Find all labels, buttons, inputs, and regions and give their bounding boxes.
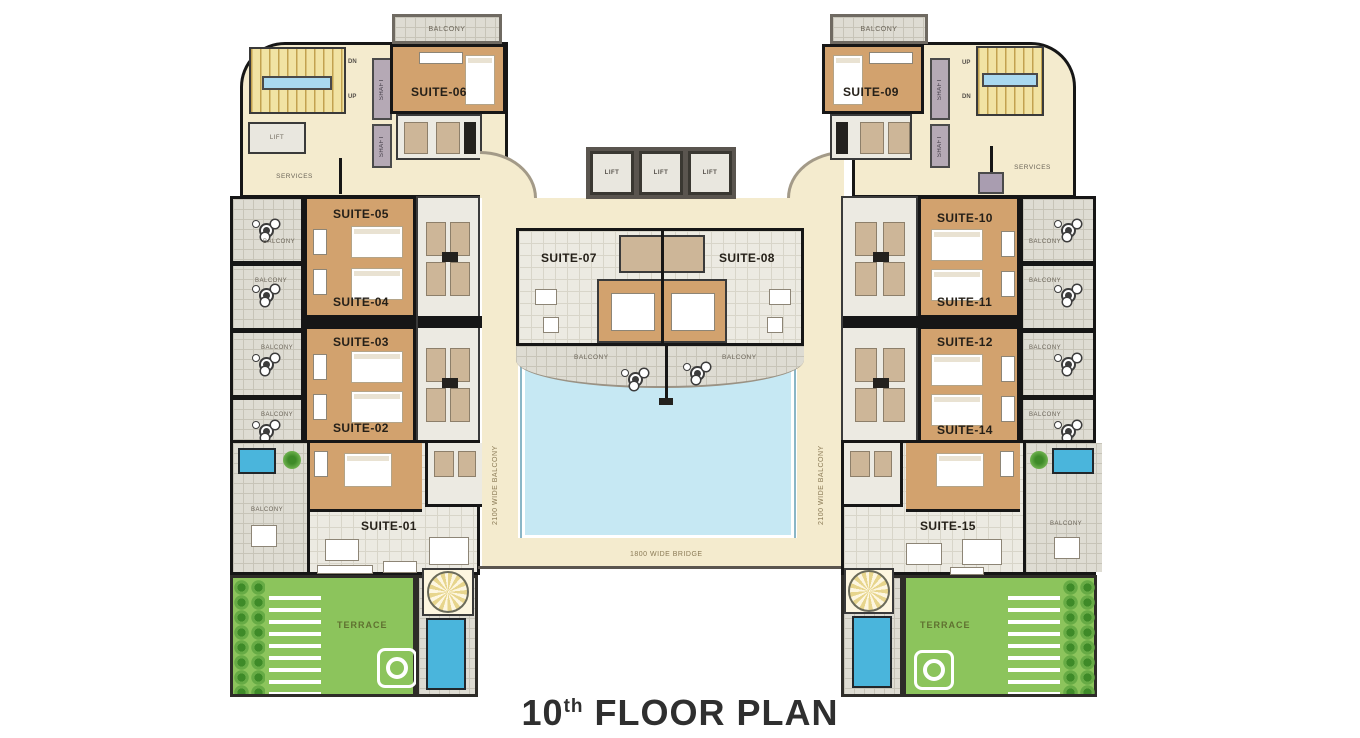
suite01-bedroom <box>310 443 422 512</box>
spiral-stair-icon <box>427 571 469 613</box>
suite15-balcony: BALCONY <box>1023 443 1102 572</box>
bed-icon <box>931 394 983 426</box>
right-service-duct <box>978 172 1004 194</box>
kitchenette-icon <box>869 52 913 64</box>
bridge-dim-label: 1800 WIDE BRIDGE <box>630 551 703 558</box>
suite09-balcony-label: BALCONY <box>861 26 898 33</box>
balcony-cell: BALCONY <box>233 333 301 400</box>
left-stair-landing <box>262 76 332 90</box>
bed-icon <box>351 226 403 258</box>
left-terrace-label: TERRACE <box>337 620 388 630</box>
suite01-balcony: BALCONY <box>233 443 310 572</box>
balcony-label: BALCONY <box>261 345 293 351</box>
balcony-cell: BALCONY <box>1023 199 1093 266</box>
suite03-label: SUITE-03 <box>333 335 389 349</box>
left-shaft-1-label: SHAFT <box>379 78 385 100</box>
fixture <box>426 348 446 382</box>
title-number: 10 <box>522 692 564 733</box>
chair-icon <box>767 317 783 333</box>
wall <box>661 231 664 349</box>
fountain-icon <box>914 650 954 690</box>
left-dn-label: DN <box>348 59 357 65</box>
lift-bank: LIFT LIFT LIFT <box>586 147 736 199</box>
table-icon <box>628 372 643 387</box>
suite04-label: SUITE-04 <box>333 295 389 309</box>
suite01-label: SUITE-01 <box>361 519 417 533</box>
right-shaft-2-label: SHAFT <box>937 135 943 157</box>
balcony-label: BALCONY <box>1029 345 1061 351</box>
fixture <box>434 451 454 477</box>
table-icon <box>1061 223 1076 238</box>
balcony-label: BALCONY <box>1029 412 1061 418</box>
wardrobe-icon <box>313 394 327 420</box>
wall <box>307 315 419 329</box>
balcony-label: BALCONY <box>1029 278 1061 284</box>
balcony-label: BALCONY <box>1029 239 1061 245</box>
balcony-label: BALCONY <box>263 239 295 245</box>
kitchenette-icon <box>419 52 463 64</box>
fixture <box>888 122 910 154</box>
bridge-edge <box>478 566 845 569</box>
lift-1: LIFT <box>590 151 634 195</box>
fixture <box>873 252 889 262</box>
suite15-label: SUITE-15 <box>920 519 976 533</box>
bed-icon <box>936 453 984 487</box>
suite06-bath <box>396 114 482 160</box>
left-up-label: UP <box>348 94 356 100</box>
right-dn-label: DN <box>962 94 971 100</box>
right-up-label: UP <box>962 60 970 66</box>
left-bath-column <box>416 196 480 445</box>
table-icon <box>259 288 274 303</box>
title-text: FLOOR PLAN <box>584 692 839 733</box>
suite02-label: SUITE-02 <box>333 421 389 435</box>
desk-icon <box>769 289 791 305</box>
right-shaft-1: SHAFT <box>930 58 950 120</box>
left-pool-corridor <box>482 198 518 566</box>
corridor-curve-left <box>480 151 537 198</box>
bed-icon <box>931 354 983 386</box>
wall <box>921 315 1023 329</box>
balcony-label: BALCONY <box>722 354 757 361</box>
center-suites-block: SUITE-07 SUITE-08 <box>516 228 804 346</box>
wardrobe-icon <box>1001 396 1015 422</box>
fixture <box>450 262 470 296</box>
lift-3-label: LIFT <box>703 170 718 176</box>
suite06-room: SUITE-06 <box>390 44 506 114</box>
wall <box>418 316 482 328</box>
sofa-icon <box>325 539 359 561</box>
desk-icon <box>535 289 557 305</box>
suite01-block: BALCONY SUITE-01 <box>230 440 480 575</box>
suite01-bath <box>425 443 483 507</box>
floor-plan-title: 10th FLOOR PLAN <box>0 692 1360 734</box>
right-shaft-2: SHAFT <box>930 124 950 168</box>
balcony-label: BALCONY <box>574 354 609 361</box>
table-icon <box>1061 288 1076 303</box>
suite09-bath <box>830 114 912 160</box>
wardrobe-icon <box>1001 356 1015 382</box>
floor-plan-canvas: DN UP LIFT SERVICES SHAFT SHAFT BALCONY … <box>0 0 1360 738</box>
fixture <box>442 378 458 388</box>
fixture <box>874 451 892 477</box>
fixture <box>855 348 877 382</box>
lift-2: LIFT <box>639 151 683 195</box>
deck-strips <box>269 596 321 694</box>
tv-unit-icon <box>950 567 984 575</box>
right-terrace: TERRACE <box>903 575 1097 697</box>
fixture <box>873 378 889 388</box>
right-wide-balcony-dim: 2100 WIDE BALCONY <box>818 415 825 525</box>
sofa-icon <box>906 543 942 565</box>
suite09-room: SUITE-09 <box>822 44 924 114</box>
lift-1-label: LIFT <box>605 170 620 176</box>
balcony-label: BALCONY <box>1050 521 1082 527</box>
fixture <box>883 348 905 382</box>
lift-2-label: LIFT <box>654 170 669 176</box>
suite09-balcony: BALCONY <box>830 14 928 44</box>
fixture <box>883 262 905 296</box>
bed-icon <box>931 229 983 261</box>
suite07-label: SUITE-07 <box>541 251 597 265</box>
lounger-icon <box>611 293 655 331</box>
plants-row-icon <box>1062 580 1096 694</box>
pool-divider-wall <box>665 346 668 402</box>
bed-icon <box>351 391 403 423</box>
dresser-icon <box>1000 451 1014 477</box>
fixture <box>855 388 877 422</box>
wardrobe-icon <box>313 229 327 255</box>
bed-icon <box>351 351 403 383</box>
wardrobe-icon <box>1001 271 1015 297</box>
right-shaft-1-label: SHAFT <box>937 78 943 100</box>
suite06-label: SUITE-06 <box>411 85 467 99</box>
title-ordinal: th <box>564 696 584 717</box>
balcony-label: BALCONY <box>261 412 293 418</box>
fixture <box>426 222 446 256</box>
fixture <box>883 222 905 256</box>
fixture <box>836 122 848 154</box>
left-services-label: SERVICES <box>276 173 313 180</box>
dresser-icon <box>314 451 328 477</box>
suite06-balcony-label: BALCONY <box>429 26 466 33</box>
right-services-label: SERVICES <box>1014 164 1051 171</box>
tv-unit-icon <box>383 561 417 573</box>
fixture <box>458 451 476 477</box>
balcony-label: BALCONY <box>255 278 287 284</box>
pool-divider-foot <box>659 398 673 405</box>
left-terrace: TERRACE <box>230 575 416 697</box>
table-icon <box>690 366 705 381</box>
wall <box>843 316 920 328</box>
fixture <box>450 348 470 382</box>
table-icon <box>1061 357 1076 372</box>
suite05-label: SUITE-05 <box>333 207 389 221</box>
bed-icon <box>465 55 495 105</box>
suite12-label: SUITE-12 <box>937 335 993 349</box>
table-icon <box>1054 537 1080 559</box>
right-stair-landing <box>982 73 1038 87</box>
table-icon <box>259 223 274 238</box>
balcony-cell: BALCONY <box>233 266 301 333</box>
plant-icon <box>1030 451 1048 469</box>
left-shaft-2: SHAFT <box>372 124 392 168</box>
fixture <box>404 122 428 154</box>
fixture <box>855 262 877 296</box>
suite14-label: SUITE-14 <box>937 423 993 437</box>
fixture <box>436 122 460 154</box>
lift-3: LIFT <box>688 151 732 195</box>
right-terrace-pool <box>852 616 892 688</box>
fixture <box>450 388 470 422</box>
right-bath-column <box>841 196 918 445</box>
lounger-icon <box>671 293 715 331</box>
balcony-cell: BALCONY <box>233 199 301 266</box>
suite01-plunge-pool <box>238 448 276 474</box>
dining-table-icon <box>962 539 1002 565</box>
suite15-bedroom <box>906 443 1020 512</box>
chair-icon <box>543 317 559 333</box>
left-lift-room: LIFT <box>248 122 306 154</box>
balcony-cell: BALCONY <box>1023 266 1093 333</box>
wardrobe-icon <box>313 269 327 295</box>
deck-strips <box>1008 596 1060 694</box>
suite10-label: SUITE-10 <box>937 211 993 225</box>
left-balcony-column: BALCONY BALCONY BALCONY BALCONY <box>230 196 304 445</box>
suite11-label: SUITE-11 <box>937 295 992 309</box>
fixture <box>426 388 446 422</box>
dining-table-icon <box>429 537 469 565</box>
left-shaft-1: SHAFT <box>372 58 392 120</box>
fixture <box>450 222 470 256</box>
bed-icon <box>344 453 392 487</box>
table-icon <box>259 357 274 372</box>
left-wide-balcony-dim: 2100 WIDE BALCONY <box>492 415 499 525</box>
left-suite-column: SUITE-05 SUITE-04 SUITE-03 SUITE-02 <box>304 196 416 445</box>
fixture <box>855 222 877 256</box>
right-terrace-label: TERRACE <box>920 620 971 630</box>
left-shaft-2-label: SHAFT <box>379 135 385 157</box>
left-services-room: SERVICES <box>250 158 342 194</box>
suite08-label: SUITE-08 <box>719 251 775 265</box>
fixture <box>850 451 870 477</box>
fixture <box>464 122 476 154</box>
table-icon <box>251 525 277 547</box>
suite15-bath <box>844 443 903 507</box>
fountain-icon <box>377 648 417 688</box>
fixture <box>442 252 458 262</box>
fixture <box>426 262 446 296</box>
left-terrace-pool <box>426 618 466 690</box>
suite09-label: SUITE-09 <box>843 85 899 99</box>
balcony-label: BALCONY <box>251 507 283 513</box>
spiral-stair-icon <box>848 570 890 612</box>
plant-icon <box>283 451 301 469</box>
table-icon <box>259 424 274 439</box>
sofa-icon <box>317 565 373 574</box>
suite15-block: BALCONY SUITE-15 <box>841 440 1096 575</box>
right-balcony-column: BALCONY BALCONY BALCONY BALCONY <box>1020 196 1096 445</box>
balcony-cell: BALCONY <box>1023 333 1093 400</box>
wardrobe-icon <box>1001 231 1015 257</box>
plants-row-icon <box>233 580 265 694</box>
fixture <box>860 122 884 154</box>
suite15-plunge-pool <box>1052 448 1094 474</box>
left-lift-label: LIFT <box>270 135 284 141</box>
suite06-balcony: BALCONY <box>392 14 502 44</box>
fixture <box>883 388 905 422</box>
table-icon <box>1061 424 1076 439</box>
right-suite-column: SUITE-10 SUITE-11 SUITE-12 SUITE-14 <box>918 196 1020 445</box>
wardrobe-icon <box>313 354 327 380</box>
